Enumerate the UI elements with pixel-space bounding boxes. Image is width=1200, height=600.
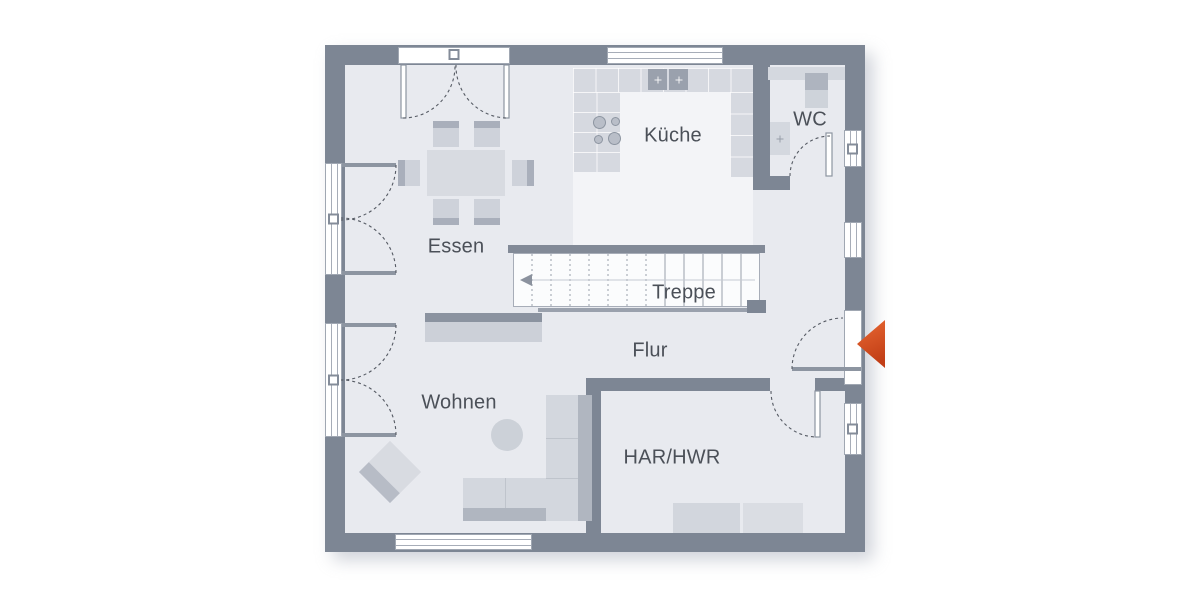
door-swing-and-stairs-linework	[325, 45, 865, 552]
room-label-kueche: Küche	[644, 125, 702, 148]
floor-plan: Küche WC Essen Treppe Flur Wohnen HAR/HW…	[325, 45, 865, 552]
door-swing-arcs	[341, 65, 843, 437]
room-label-treppe: Treppe	[652, 282, 716, 305]
room-label-har-hwr: HAR/HWR	[624, 447, 721, 470]
room-label-wc: WC	[793, 109, 827, 132]
stairs-direction-arrow-icon	[520, 274, 532, 286]
room-label-flur: Flur	[632, 340, 667, 363]
room-label-essen: Essen	[428, 236, 485, 259]
page: { "plan": { "rooms": [ {"id": "kueche", …	[0, 0, 1200, 600]
door-leaves	[342, 165, 861, 435]
room-label-wohnen: Wohnen	[421, 392, 496, 415]
